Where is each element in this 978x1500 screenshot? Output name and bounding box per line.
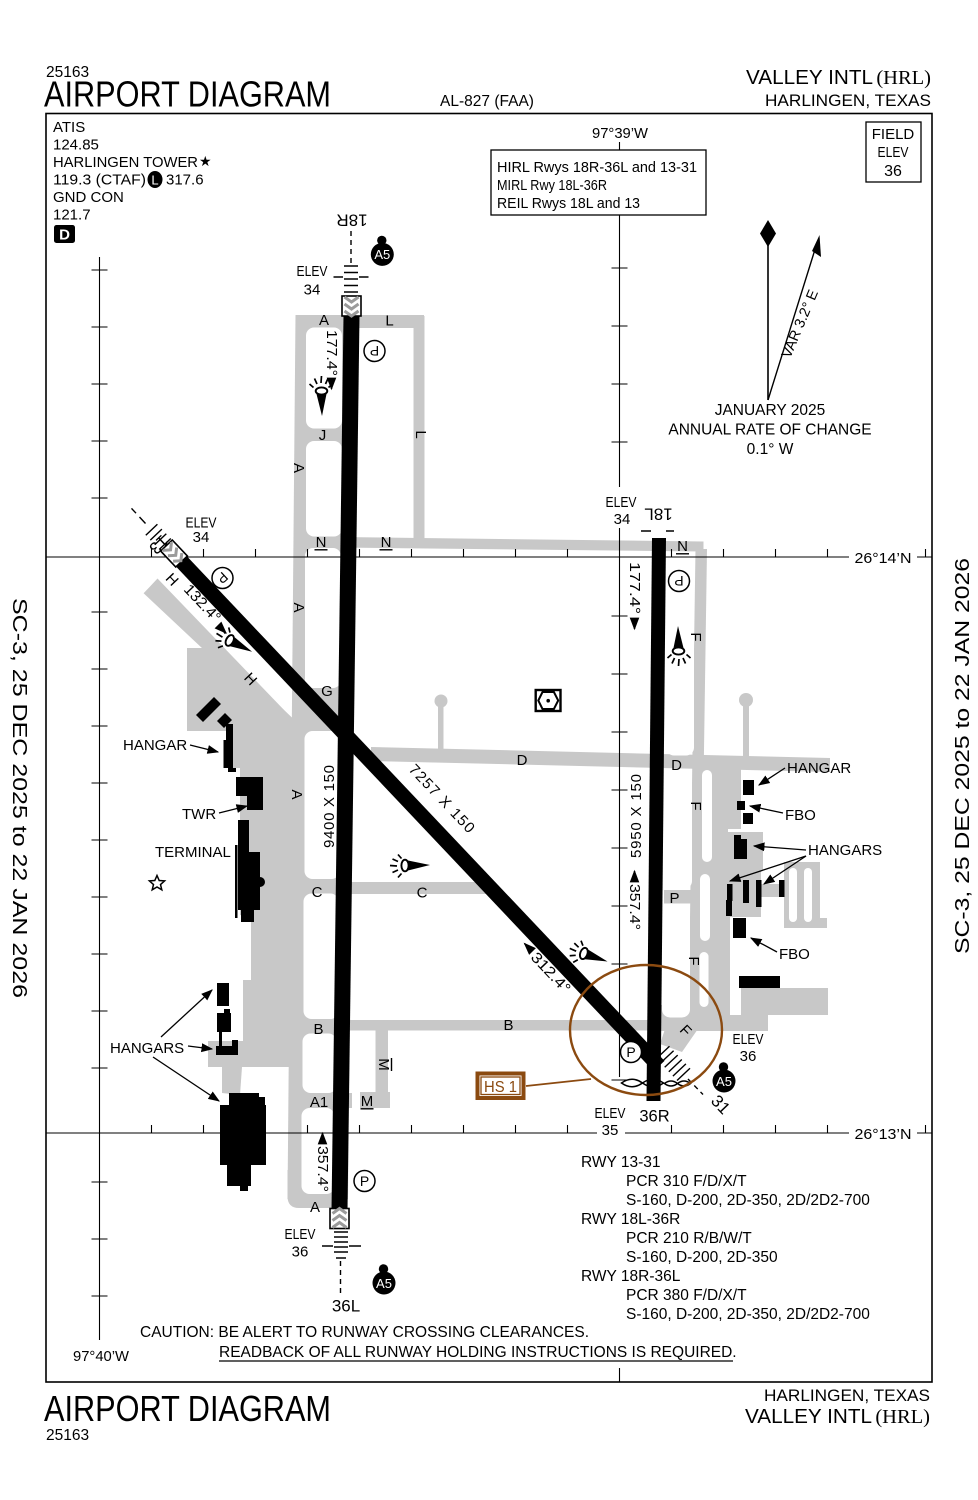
svg-text:L: L — [385, 313, 393, 330]
svg-text:124.85: 124.85 — [53, 137, 99, 154]
svg-text:A: A — [288, 789, 305, 799]
svg-text:25163: 25163 — [46, 1427, 89, 1444]
svg-text:P: P — [626, 1044, 635, 1060]
svg-text:97°39’W: 97°39’W — [592, 125, 649, 142]
svg-text:177.4°: 177.4° — [626, 562, 643, 614]
svg-text:A: A — [290, 602, 307, 612]
svg-text:18R: 18R — [336, 211, 367, 230]
svg-text:317.6: 317.6 — [166, 172, 204, 189]
svg-text:F: F — [687, 632, 704, 641]
svg-text:ELEV: ELEV — [297, 263, 328, 280]
svg-text:ATIS: ATIS — [53, 119, 85, 136]
svg-text:36: 36 — [884, 163, 902, 180]
svg-text:HANGARS: HANGARS — [110, 1040, 184, 1057]
svg-text:HARLINGEN TOWER: HARLINGEN TOWER — [53, 154, 198, 171]
svg-text:HS 1: HS 1 — [484, 1079, 517, 1096]
svg-text:CAUTION: BE ALERT TO RUNWAY CR: CAUTION: BE ALERT TO RUNWAY CROSSING CLE… — [140, 1324, 589, 1341]
svg-text:HARLINGEN, TEXAS: HARLINGEN, TEXAS — [765, 92, 931, 110]
svg-text:B: B — [313, 1021, 323, 1038]
svg-text:JANUARY 2025: JANUARY 2025 — [715, 402, 826, 419]
svg-text:HANGAR: HANGAR — [787, 760, 851, 777]
svg-text:L: L — [151, 173, 158, 188]
svg-text:D: D — [671, 757, 682, 774]
svg-text:RWY 18L-36R: RWY 18L-36R — [581, 1211, 680, 1228]
svg-text:VALLEY INTL: VALLEY INTL — [746, 66, 873, 89]
svg-text:S-160, D-200, 2D-350, 2D/2D2-7: S-160, D-200, 2D-350, 2D/2D2-700 — [626, 1192, 870, 1209]
svg-text:36L: 36L — [332, 1297, 360, 1316]
svg-text:35: 35 — [602, 1122, 619, 1139]
svg-text:RWY 18R-36L: RWY 18R-36L — [581, 1268, 681, 1285]
svg-text:A: A — [319, 312, 329, 329]
svg-text:ELEV: ELEV — [595, 1105, 626, 1122]
svg-text:FBO: FBO — [785, 807, 816, 824]
svg-text:18L: 18L — [644, 505, 672, 524]
svg-text:26°14’N: 26°14’N — [855, 550, 912, 567]
svg-text:N: N — [381, 534, 392, 551]
svg-text:ELEV: ELEV — [606, 494, 637, 511]
svg-text:GND CON: GND CON — [53, 189, 124, 206]
svg-text:TWR: TWR — [182, 806, 216, 823]
svg-text:34: 34 — [614, 511, 631, 528]
svg-text:97°40’W: 97°40’W — [73, 1348, 130, 1365]
svg-text:TERMINAL: TERMINAL — [155, 844, 231, 861]
svg-text:HANGAR: HANGAR — [123, 737, 187, 754]
svg-text:SC-3, 25 DEC 2025 to 22 JAN: SC-3, 25 DEC 2025 to 22 JAN 2026 — [8, 598, 30, 998]
svg-text:C: C — [312, 884, 323, 901]
svg-text:HARLINGEN, TEXAS: HARLINGEN, TEXAS — [764, 1387, 930, 1405]
svg-text:HIRL Rwys 18R-36L and 13-31: HIRL Rwys 18R-36L and 13-31 — [497, 160, 697, 176]
svg-text:J: J — [319, 427, 327, 444]
svg-text:A: A — [310, 1199, 320, 1216]
svg-text:(HRL): (HRL) — [875, 1406, 930, 1428]
svg-text:F: F — [685, 956, 702, 965]
svg-text:177.4°: 177.4° — [323, 330, 340, 376]
svg-text:S-160, D-200, 2D-350, 2D/2D2-7: S-160, D-200, 2D-350, 2D/2D2-700 — [626, 1306, 870, 1323]
svg-text:36: 36 — [292, 1244, 309, 1261]
svg-text:(HRL): (HRL) — [876, 67, 931, 89]
svg-text:N: N — [677, 538, 688, 555]
svg-text:36R: 36R — [639, 1108, 669, 1126]
svg-text:RWY 13-31: RWY 13-31 — [581, 1154, 661, 1171]
svg-text:34: 34 — [193, 529, 210, 546]
svg-text:B: B — [503, 1017, 513, 1034]
svg-text:AL-827 (FAA): AL-827 (FAA) — [440, 93, 534, 110]
svg-text:A: A — [290, 463, 307, 473]
svg-text:G: G — [321, 683, 333, 700]
svg-text:SC-3, 25 DEC 2025 to 22 JAN: SC-3, 25 DEC 2025 to 22 JAN 2026 — [952, 558, 974, 954]
svg-text:357.4°: 357.4° — [626, 884, 643, 930]
svg-text:F: F — [687, 801, 704, 810]
svg-text:HANGARS: HANGARS — [808, 842, 882, 859]
svg-text:26°13’N: 26°13’N — [855, 1126, 912, 1143]
svg-text:357.4°: 357.4° — [314, 1146, 331, 1192]
svg-text:PCR 310 F/D/X/T: PCR 310 F/D/X/T — [626, 1173, 747, 1190]
svg-text:121.7: 121.7 — [53, 207, 91, 224]
svg-text:FIELD: FIELD — [872, 126, 915, 143]
svg-text:P: P — [669, 890, 679, 907]
svg-text:FBO: FBO — [779, 946, 810, 963]
svg-text:AIRPORT DIAGRAM: AIRPORT DIAGRAM — [44, 1388, 331, 1429]
svg-text:C: C — [417, 885, 428, 902]
svg-text:A1: A1 — [310, 1094, 328, 1111]
svg-text:119.3 (CTAF): 119.3 (CTAF) — [53, 172, 146, 189]
svg-text:AIRPORT DIAGRAM: AIRPORT DIAGRAM — [44, 74, 331, 115]
svg-text:P: P — [370, 343, 379, 359]
svg-text:D: D — [59, 227, 70, 244]
svg-text:P: P — [674, 573, 683, 589]
svg-text:N: N — [316, 534, 327, 551]
svg-text:MIRL Rwy 18L-36R: MIRL Rwy 18L-36R — [497, 178, 607, 194]
svg-text:5950 X 150: 5950 X 150 — [628, 774, 645, 858]
svg-text:34: 34 — [304, 282, 321, 299]
svg-text:L: L — [412, 430, 429, 438]
svg-text:READBACK OF ALL RUNWAY HOLDING: READBACK OF ALL RUNWAY HOLDING INSTRUCTI… — [219, 1344, 737, 1361]
svg-text:36: 36 — [740, 1048, 757, 1065]
svg-text:ELEV: ELEV — [285, 1226, 316, 1243]
svg-text:M: M — [375, 1058, 392, 1071]
svg-text:ANNUAL RATE OF CHANGE: ANNUAL RATE OF CHANGE — [668, 422, 871, 439]
svg-text:S-160, D-200, 2D-350: S-160, D-200, 2D-350 — [626, 1249, 778, 1266]
svg-text:★: ★ — [199, 153, 212, 169]
svg-text:ELEV: ELEV — [733, 1031, 764, 1048]
svg-text:ELEV: ELEV — [878, 144, 909, 161]
svg-text:M: M — [361, 1093, 374, 1110]
svg-text:REIL Rwys 18L and 13: REIL Rwys 18L and 13 — [497, 196, 640, 212]
svg-text:9400 X 150: 9400 X 150 — [321, 765, 338, 848]
svg-text:D: D — [517, 752, 528, 769]
svg-text:PCR 210 R/B/W/T: PCR 210 R/B/W/T — [626, 1230, 752, 1247]
svg-text:0.1° W: 0.1° W — [747, 441, 794, 458]
svg-text:VALLEY INTL: VALLEY INTL — [745, 1405, 872, 1428]
svg-text:P: P — [360, 1173, 369, 1189]
svg-text:PCR 380 F/D/X/T: PCR 380 F/D/X/T — [626, 1287, 747, 1304]
